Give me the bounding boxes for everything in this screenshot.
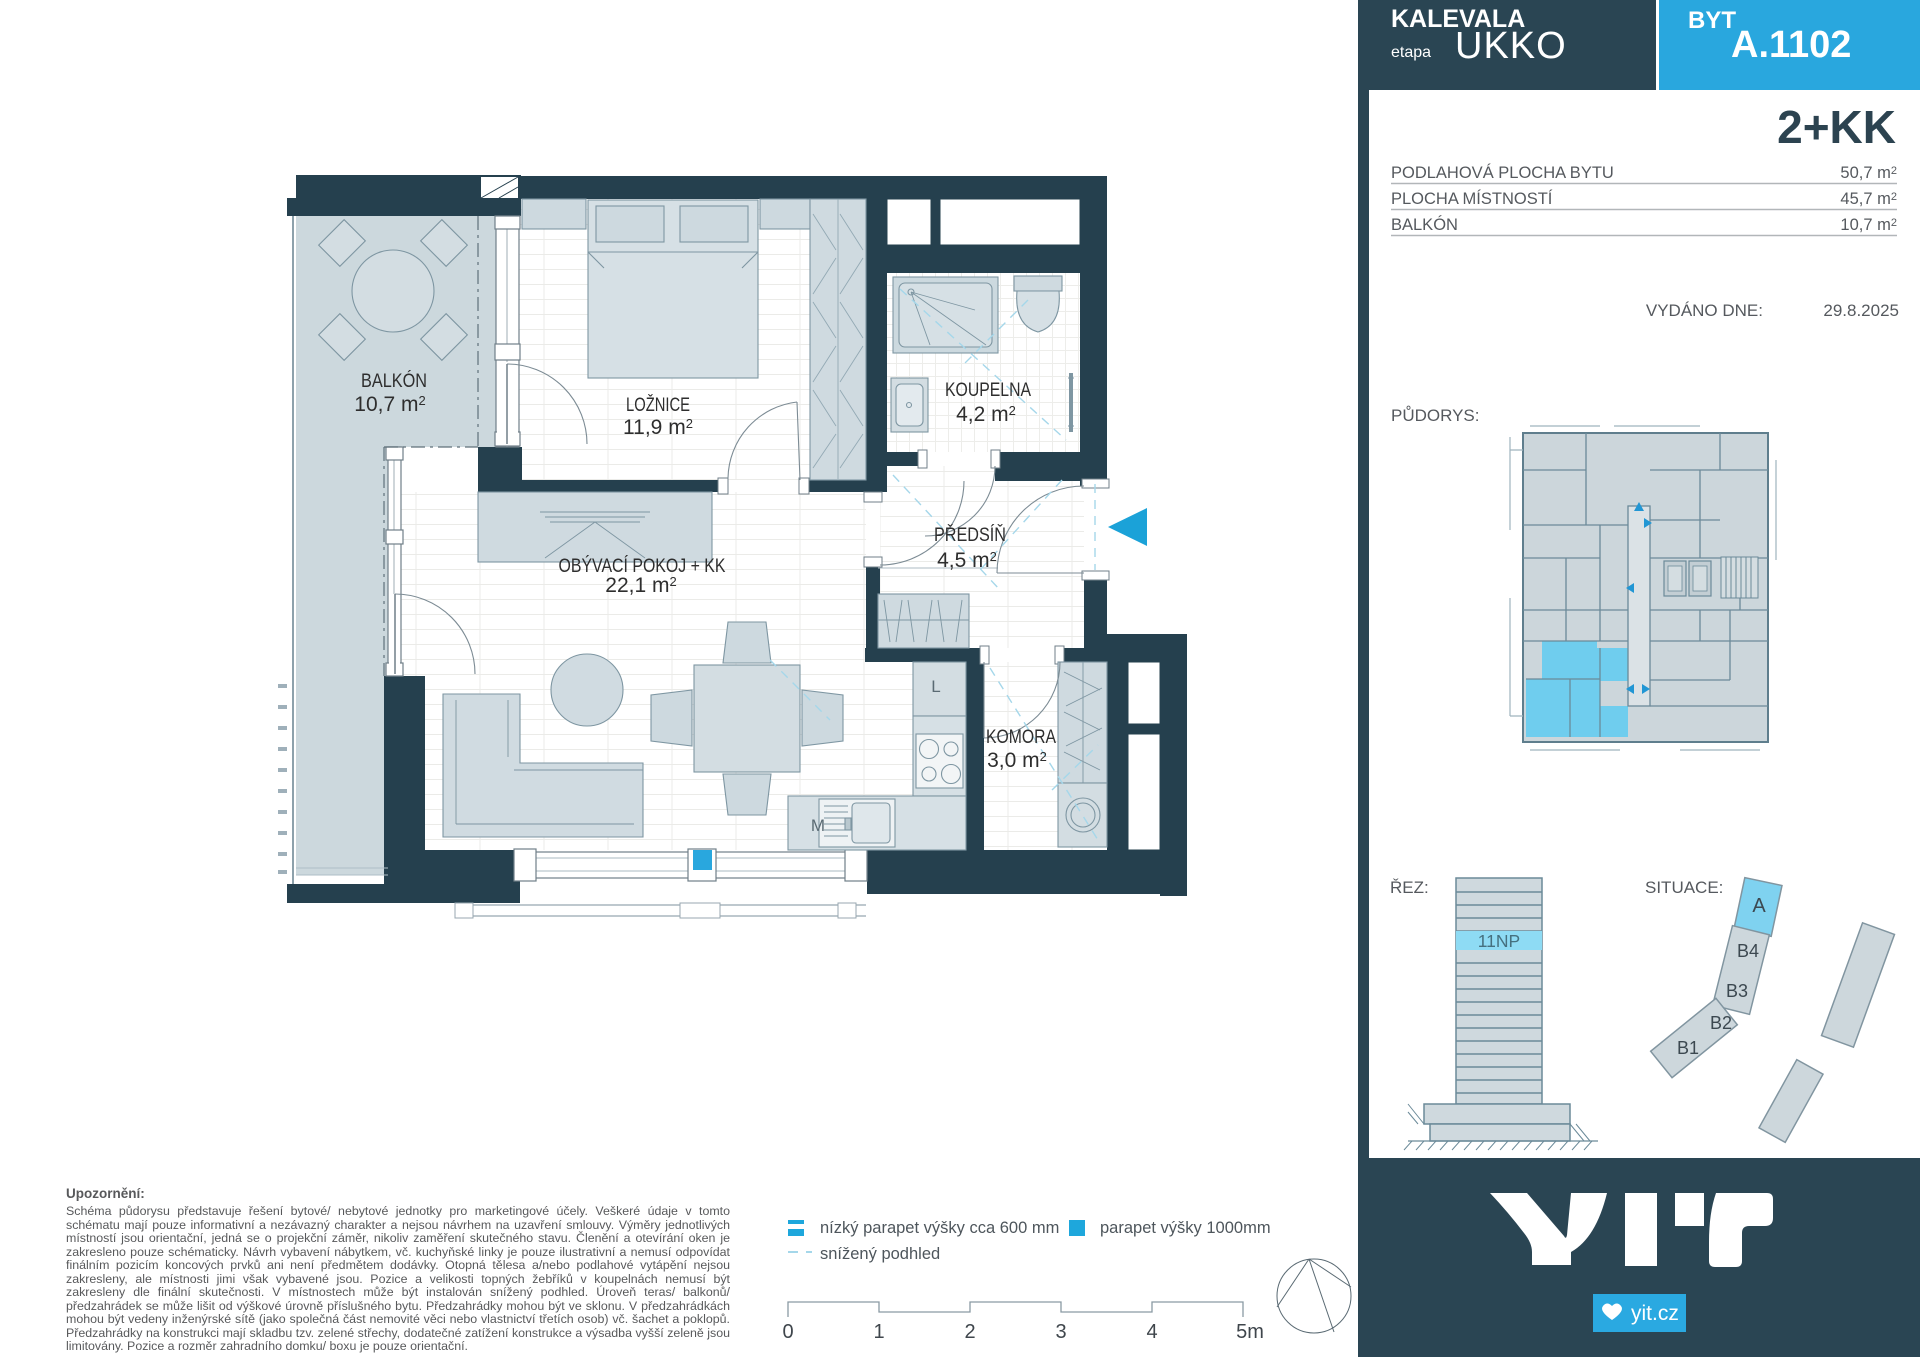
svg-text:3: 3: [1055, 1321, 1066, 1343]
svg-text:29.8.2025: 29.8.2025: [1823, 301, 1899, 320]
svg-text:BALKÓN: BALKÓN: [361, 369, 427, 392]
svg-text:1: 1: [873, 1321, 884, 1343]
svg-text:LOŽNICE: LOŽNICE: [626, 393, 690, 416]
svg-text:UKKO: UKKO: [1455, 25, 1567, 67]
svg-text:parapet výšky 1000mm: parapet výšky 1000mm: [1100, 1219, 1271, 1237]
svg-text:B4: B4: [1737, 941, 1759, 961]
svg-text:KOUPELNA: KOUPELNA: [945, 379, 1031, 401]
svg-text:4,2 m2: 4,2 m2: [956, 403, 1016, 426]
svg-text:2+KK: 2+KK: [1777, 101, 1896, 153]
svg-text:BALKÓN: BALKÓN: [1391, 215, 1458, 234]
svg-text:ŘEZ:: ŘEZ:: [1390, 878, 1429, 897]
svg-text:B2: B2: [1710, 1013, 1732, 1033]
svg-text:M: M: [811, 816, 825, 835]
svg-text:L: L: [931, 677, 940, 696]
svg-text:SITUACE:: SITUACE:: [1645, 878, 1723, 897]
svg-text:10,7 m2: 10,7 m2: [1840, 216, 1897, 234]
svg-text:A: A: [1752, 895, 1766, 917]
svg-text:11,9 m2: 11,9 m2: [623, 416, 693, 439]
svg-text:45,7 m2: 45,7 m2: [1840, 190, 1897, 208]
svg-text:VYDÁNO DNE:: VYDÁNO DNE:: [1646, 301, 1763, 320]
svg-text:50,7 m2: 50,7 m2: [1840, 164, 1897, 182]
svg-text:PŘEDSÍŇ: PŘEDSÍŇ: [934, 523, 1006, 546]
svg-text:4,5 m2: 4,5 m2: [937, 549, 997, 572]
svg-text:11NP: 11NP: [1478, 931, 1520, 951]
svg-text:BYT: BYT: [1688, 7, 1736, 34]
svg-text:B1: B1: [1677, 1038, 1699, 1058]
svg-text:5m: 5m: [1236, 1321, 1264, 1343]
svg-text:PODLAHOVÁ PLOCHA BYTU: PODLAHOVÁ PLOCHA BYTU: [1391, 163, 1614, 182]
svg-text:22,1 m2: 22,1 m2: [605, 574, 676, 597]
svg-text:KOMORA: KOMORA: [986, 726, 1056, 748]
svg-text:2: 2: [964, 1321, 975, 1343]
svg-text:A.1102: A.1102: [1731, 24, 1851, 66]
svg-text:10,7 m2: 10,7 m2: [354, 393, 425, 416]
svg-text:etapa: etapa: [1391, 44, 1431, 61]
svg-text:B3: B3: [1726, 981, 1748, 1001]
svg-text:3,0 m2: 3,0 m2: [987, 749, 1047, 772]
svg-text:PŮDORYS:: PŮDORYS:: [1391, 406, 1480, 425]
svg-text:0: 0: [782, 1321, 793, 1343]
svg-text:nízký parapet výšky cca 600 mm: nízký parapet výšky cca 600 mm: [820, 1219, 1059, 1237]
svg-text:yit.cz: yit.cz: [1631, 1302, 1679, 1325]
svg-text:4: 4: [1146, 1321, 1157, 1343]
svg-text:PLOCHA MÍSTNOSTÍ: PLOCHA MÍSTNOSTÍ: [1391, 189, 1553, 208]
svg-text:snížený podhled: snížený podhled: [820, 1245, 940, 1263]
